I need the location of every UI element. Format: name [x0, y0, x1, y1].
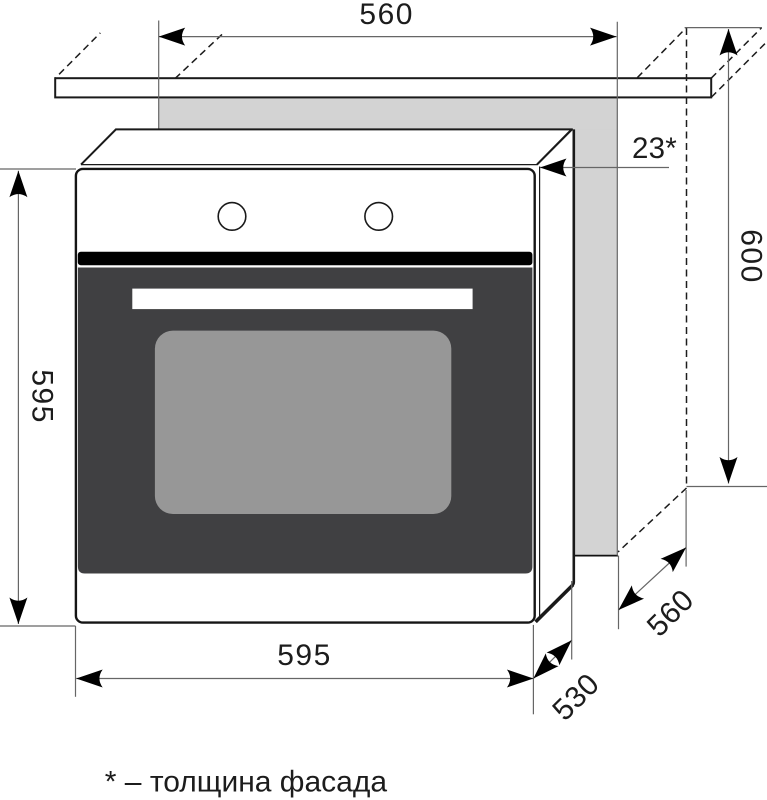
- svg-text:600: 600: [735, 229, 767, 284]
- svg-text:23*: 23*: [632, 132, 677, 165]
- svg-text:* – толщина фасада: * – толщина фасада: [105, 765, 388, 798]
- svg-text:560: 560: [359, 0, 414, 31]
- svg-text:595: 595: [26, 369, 59, 424]
- svg-text:595: 595: [277, 639, 332, 672]
